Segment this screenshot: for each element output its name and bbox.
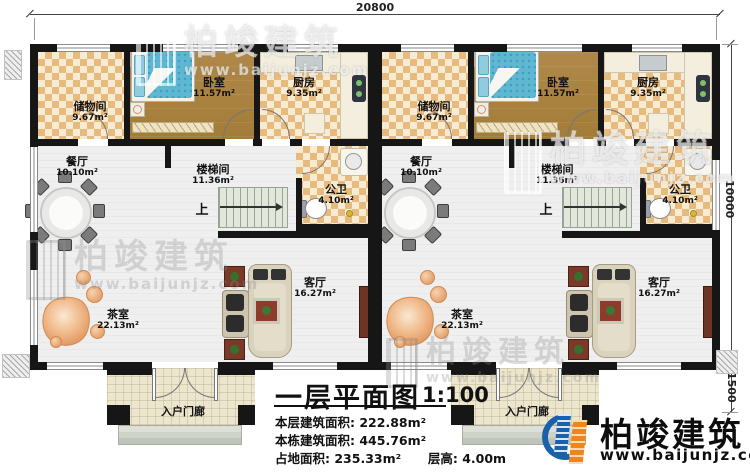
party-wall — [368, 44, 382, 370]
end-table — [568, 339, 589, 360]
stairs-arrow — [276, 203, 283, 211]
window — [712, 160, 720, 230]
dining-table — [384, 187, 436, 239]
window — [288, 44, 338, 52]
floorplan-canvas: 上 — [0, 0, 750, 472]
section-hatch — [2, 354, 30, 378]
room-label-living: 客厅16.27m² — [617, 277, 701, 299]
info-value: 222.88m² — [359, 415, 426, 430]
kitchen-stove — [696, 75, 710, 102]
wall — [124, 52, 130, 146]
title-underline — [274, 405, 446, 407]
room-label-bathroom: 公卫4.10m² — [640, 184, 720, 206]
window — [632, 44, 682, 52]
stairs-arrow — [620, 203, 627, 211]
pillow — [478, 55, 489, 75]
extension-line — [34, 18, 35, 40]
stairs-direction-line — [220, 206, 276, 208]
dimension-line-top — [30, 14, 720, 15]
window — [401, 44, 454, 52]
window — [391, 362, 447, 370]
wall — [562, 231, 712, 238]
exterior-wall — [562, 362, 617, 370]
wall — [218, 231, 368, 238]
exterior-wall — [447, 362, 496, 370]
info-value: 235.33m² — [334, 451, 401, 466]
wall — [382, 139, 422, 146]
room-label-bedroom: 卧室11.57m² — [508, 77, 608, 99]
porch-pillar — [238, 405, 255, 425]
porch-steps — [118, 425, 242, 445]
pillow — [478, 77, 489, 97]
wall — [634, 139, 646, 146]
end-table — [568, 266, 589, 287]
room-label-living: 客厅16.27m² — [273, 277, 357, 299]
coffee-table — [597, 298, 624, 324]
wall — [597, 139, 606, 146]
wall — [108, 139, 225, 146]
dining-table — [40, 187, 92, 239]
dimension-tick — [716, 10, 724, 18]
wardrobe — [476, 122, 558, 133]
window — [30, 147, 38, 232]
room-label-bathroom: 公卫4.10m² — [296, 184, 376, 206]
exterior-wall — [337, 362, 391, 370]
exterior-wall — [30, 345, 38, 370]
info-row: 本栋建筑面积: 445.76m² — [275, 430, 426, 449]
room-label-bedroom: 卧室11.57m² — [164, 77, 264, 99]
section-hatch — [4, 50, 22, 80]
wall — [674, 139, 712, 146]
info-value: 4.00m — [462, 451, 506, 466]
kitchen-sink — [295, 55, 323, 71]
stairs-up-label: 上 — [538, 199, 554, 218]
wardrobe — [132, 122, 214, 133]
exterior-wall — [218, 362, 273, 370]
exterior-wall — [30, 44, 38, 147]
exterior-wall — [454, 44, 507, 52]
wall — [253, 139, 262, 146]
room-label-stairwell: 楼梯间11.36m² — [507, 164, 607, 186]
extension-line — [722, 44, 738, 45]
end-table — [224, 266, 245, 287]
exterior-wall — [110, 44, 163, 52]
room-label-stairwell: 楼梯间11.36m² — [163, 164, 263, 186]
extension-line — [716, 18, 717, 40]
brand-logo-icon — [540, 406, 596, 464]
window — [507, 44, 582, 52]
exterior-wall — [30, 232, 38, 270]
wall — [468, 52, 474, 146]
bathroom-sink — [340, 148, 368, 176]
window — [30, 270, 38, 345]
room-label-porch: 入户门廊 — [133, 406, 233, 418]
wall — [296, 224, 368, 231]
exterior-wall — [582, 44, 632, 52]
wall — [640, 224, 712, 231]
dimension-right-height: 10000 — [723, 180, 736, 218]
info-label: 本栋建筑面积: — [275, 433, 355, 448]
coffee-table — [253, 298, 280, 324]
section-hatch — [716, 350, 738, 374]
window — [47, 362, 103, 370]
brand-website: www.baijunjz.com — [600, 446, 750, 464]
kitchen-table — [648, 113, 669, 134]
window — [57, 44, 110, 52]
room-label-storage: 储物间9.67m² — [46, 101, 134, 123]
room-label-tearoom: 茶室22.13m² — [76, 309, 160, 331]
info-label: 层高: — [428, 451, 458, 466]
room-label-storage: 储物间9.67m² — [390, 101, 478, 123]
room-label-kitchen: 厨房9.35m² — [254, 77, 354, 99]
window — [617, 362, 681, 370]
kitchen-stove — [352, 75, 366, 102]
armchair — [566, 290, 593, 338]
floor-drain — [690, 210, 697, 217]
info-row: 占地面积: 235.33m² 层高: 4.00m — [275, 448, 506, 467]
wall — [38, 139, 78, 146]
info-label: 占地面积: — [275, 451, 330, 466]
info-row: 本层建筑面积: 222.88m² — [275, 412, 426, 431]
room-label-dining: 餐厅10.10m² — [38, 156, 116, 178]
dimension-porch-height: 1500 — [725, 372, 738, 403]
pillow — [134, 55, 145, 75]
room-label-dining: 餐厅10.10m² — [382, 156, 460, 178]
plan-title: 一层平面图 — [275, 376, 420, 415]
exterior-wall — [238, 44, 288, 52]
info-value: 445.76m² — [359, 433, 426, 448]
end-table — [224, 339, 245, 360]
stairs-direction-line — [564, 206, 620, 208]
dimension-top-width: 20800 — [345, 1, 405, 14]
exterior-wall — [712, 230, 720, 370]
wall — [330, 139, 368, 146]
exterior-wall — [681, 362, 712, 370]
exterior-wall — [712, 44, 720, 160]
bathroom-sink — [684, 148, 712, 176]
wall — [452, 139, 569, 146]
window — [163, 44, 238, 52]
window — [273, 362, 337, 370]
porch-pillar — [451, 405, 474, 425]
info-label: 本层建筑面积: — [275, 415, 355, 430]
kitchen-sink — [639, 55, 667, 71]
stairs-up-label: 上 — [194, 199, 210, 218]
room-label-tearoom: 茶室22.13m² — [420, 309, 504, 331]
room-label-kitchen: 厨房9.35m² — [598, 77, 698, 99]
plan-scale: 1:100 — [422, 383, 489, 407]
wall — [290, 139, 302, 146]
exterior-wall — [103, 362, 152, 370]
pillow — [134, 77, 145, 97]
kitchen-table — [304, 113, 325, 134]
armchair — [222, 290, 249, 338]
floor-drain — [346, 210, 353, 217]
porch-pillar — [107, 405, 130, 425]
